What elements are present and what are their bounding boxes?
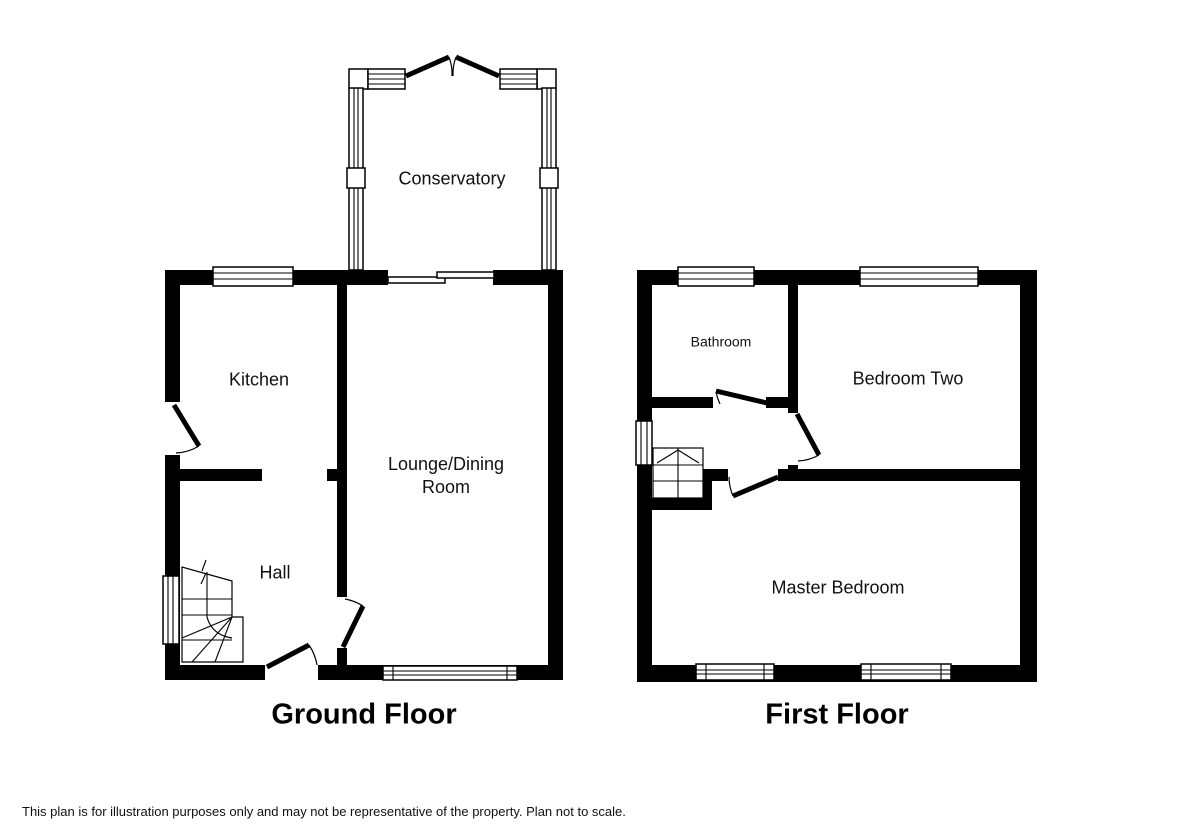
- front-door-symbol: [267, 645, 317, 667]
- room-label-lounge-line1: Lounge/Dining: [388, 453, 504, 476]
- bathroom-door-symbol: [716, 391, 767, 404]
- master-bedroom-door-symbol: [729, 477, 778, 496]
- ground-floor-plan: [163, 57, 563, 680]
- floorplan-drawing: [0, 0, 1200, 840]
- disclaimer-text: This plan is for illustration purposes o…: [22, 804, 626, 819]
- room-label-kitchen: Kitchen: [229, 369, 289, 392]
- ground-floor-title: Ground Floor: [271, 699, 456, 732]
- french-doors-symbol: [406, 57, 499, 76]
- room-label-conservatory: Conservatory: [398, 168, 505, 191]
- room-label-master-bedroom: Master Bedroom: [771, 577, 904, 600]
- room-label-bathroom: Bathroom: [691, 331, 752, 354]
- bedroom-two-door-symbol: [797, 414, 819, 461]
- first-floor-stairs-symbol: [653, 448, 703, 498]
- ground-floor-stairs-symbol: [182, 560, 243, 662]
- room-label-hall: Hall: [259, 562, 290, 585]
- room-label-lounge-line2: Room: [388, 476, 504, 499]
- floorplan-page: Conservatory Kitchen Lounge/Dining Room …: [0, 0, 1200, 840]
- room-label-bedroom-two: Bedroom Two: [853, 368, 964, 391]
- lounge-door-symbol: [343, 599, 363, 647]
- first-floor-plan: [636, 267, 1037, 682]
- room-label-lounge-dining: Lounge/Dining Room: [388, 453, 504, 499]
- first-floor-title: First Floor: [765, 699, 908, 732]
- sliding-door-symbol: [388, 272, 494, 283]
- kitchen-door-symbol: [174, 405, 199, 453]
